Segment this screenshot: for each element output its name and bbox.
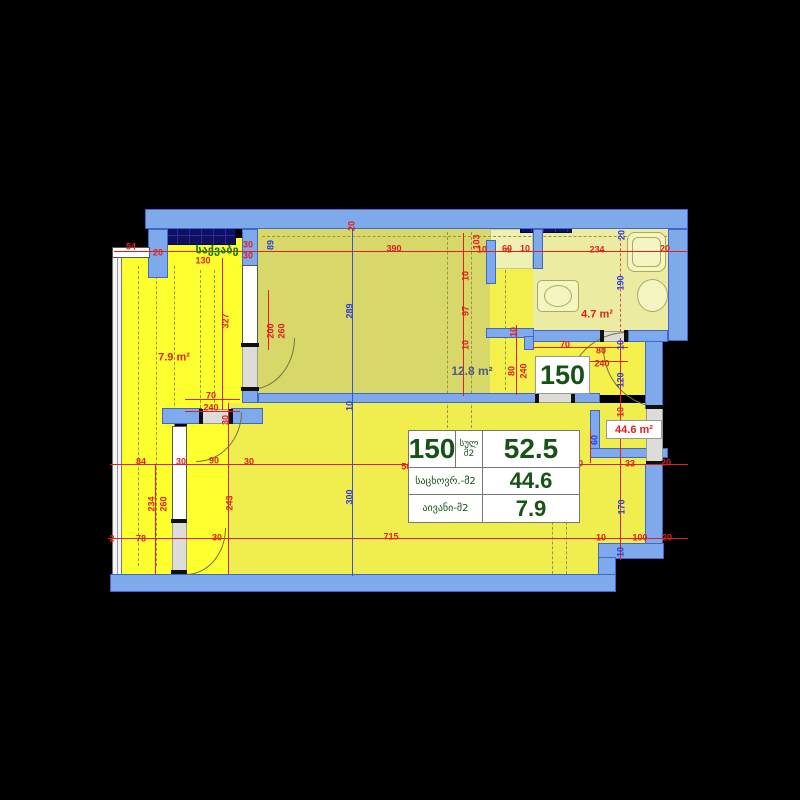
dimension-label: 30 xyxy=(244,458,254,467)
dimension-label: 54 xyxy=(126,243,136,252)
dimension-line xyxy=(155,464,156,574)
dimension-label: 200 xyxy=(267,323,276,338)
dimension-label: 10 xyxy=(617,407,626,417)
dimension-label: 89 xyxy=(267,240,276,250)
floor-plan-canvas: ≈ საქვაბე 7.9 m² 12.8 m² 4.7 m² 150 44.6… xyxy=(0,0,800,800)
sink-basin xyxy=(544,285,572,307)
dimension-label: 97 xyxy=(462,306,471,316)
dimension-label: 260 xyxy=(160,496,169,511)
dimension-label: 130 xyxy=(195,257,210,266)
door-stop xyxy=(171,570,187,574)
apartment-summary-table: 150 სულ მ2 52.5 საცხოვრ.-მ2 44.6 აივანი-… xyxy=(408,430,580,523)
dimension-label: 170 xyxy=(618,499,627,514)
summary-sq-label: მ2 xyxy=(464,449,474,459)
wall xyxy=(258,393,539,403)
dimension-label: 327 xyxy=(222,313,231,328)
summary-unit-cell: 150 xyxy=(409,431,456,468)
dimension-label: 10 xyxy=(596,534,606,543)
wall xyxy=(486,240,496,284)
room-label-bathroom-area: 4.7 m² xyxy=(581,310,613,321)
toilet xyxy=(637,279,668,312)
dimension-label: 240 xyxy=(594,360,609,369)
dimension-label: 10 xyxy=(520,245,530,254)
dimension-label: 20 xyxy=(348,221,357,231)
dimension-label: 30 xyxy=(243,241,253,250)
furniture-dashed-line xyxy=(156,266,157,566)
door-threshold xyxy=(172,522,187,574)
living-area-value: 44.6 m² xyxy=(615,424,653,436)
dimension-label: 70 xyxy=(206,392,216,401)
room-label-boiler: საქვაბე xyxy=(195,245,238,256)
exterior-patch xyxy=(663,341,700,403)
door-stop xyxy=(241,343,259,347)
door-threshold xyxy=(537,393,575,403)
door-swing-arc xyxy=(603,348,663,408)
shower-tray-inner xyxy=(632,237,661,267)
wall xyxy=(628,330,668,342)
summary-total-label: სულ xyxy=(460,439,479,449)
summary-balcony-label: აივანი-მ2 xyxy=(422,503,468,514)
door-stop xyxy=(171,519,187,523)
dimension-line xyxy=(268,290,269,350)
dimension-label: 80 xyxy=(596,347,606,356)
dimension-label: 234 xyxy=(589,246,604,255)
summary-residential-label: საცხოვრ.-მ2 xyxy=(415,476,476,487)
dimension-line xyxy=(222,258,223,410)
furniture-dashed-line xyxy=(174,266,175,426)
dimension-label: 78 xyxy=(136,535,146,544)
dimension-line xyxy=(620,338,621,560)
dimension-label: 300 xyxy=(346,489,355,504)
dimension-label: 80 xyxy=(508,366,517,376)
summary-total-label-cell: სულ მ2 xyxy=(456,431,483,468)
dimension-label: 120 xyxy=(617,372,626,387)
door-stop xyxy=(571,393,575,403)
dimension-label: 20 xyxy=(618,230,627,240)
dimension-label: 10 xyxy=(462,340,471,350)
dimension-label: 100 xyxy=(632,534,647,543)
dimension-label: 20 xyxy=(660,245,670,254)
furniture-dashed-line xyxy=(200,270,201,408)
summary-total-value-cell: 52.5 xyxy=(483,431,579,468)
dimension-label: 10 xyxy=(462,271,471,281)
window xyxy=(172,426,187,524)
dimension-label: 20 xyxy=(153,249,163,258)
summary-balcony-value: 7.9 xyxy=(516,496,547,522)
summary-total-value: 52.5 xyxy=(504,433,559,465)
dimension-label: 30 xyxy=(176,458,186,467)
wall xyxy=(145,209,688,229)
dimension-label: 70 xyxy=(560,341,570,350)
dimension-line xyxy=(228,403,229,574)
dimension-label: 243 xyxy=(226,495,235,510)
summary-residential-value-cell: 44.6 xyxy=(483,468,579,495)
dimension-label: 390 xyxy=(386,245,401,254)
room-label-bedroom-area: 12.8 m² xyxy=(451,365,492,377)
window xyxy=(242,265,258,347)
dimension-label: 20 xyxy=(661,459,671,468)
door-stop xyxy=(241,387,259,391)
dimension-label: 30 xyxy=(243,252,253,261)
summary-residential-value: 44.6 xyxy=(510,468,553,494)
dimension-label: 260 xyxy=(278,323,287,338)
door-stop xyxy=(646,405,663,409)
dimension-label: 10 xyxy=(617,340,626,350)
unit-number: 150 xyxy=(540,360,585,391)
dimension-label: 30 xyxy=(222,415,231,425)
dimension-label: 20 xyxy=(662,534,672,543)
exterior-patch xyxy=(616,559,700,599)
dimension-label: 33 xyxy=(625,460,635,469)
living-area-plate: 44.6 m² xyxy=(606,420,662,439)
summary-unit-number: 150 xyxy=(409,433,455,465)
dimension-label: 190 xyxy=(617,275,626,290)
dimension-line xyxy=(533,347,628,348)
room-label-balcony-area: 7.9 m² xyxy=(158,353,190,364)
balcony-railing-line xyxy=(117,258,118,574)
wall xyxy=(573,393,600,403)
dimension-label: 60 xyxy=(591,435,600,445)
dimension-label: 715 xyxy=(383,533,398,542)
wall xyxy=(533,229,543,269)
dimension-label: 10 xyxy=(617,547,626,557)
furniture-dashed-line xyxy=(138,266,139,566)
dimension-label: 10 xyxy=(346,401,355,411)
dimension-label: 30 xyxy=(212,534,222,543)
door-stop xyxy=(535,393,539,403)
door-stop xyxy=(600,330,604,342)
dimension-label: 234 xyxy=(148,496,157,511)
dimension-label: 84 xyxy=(136,458,146,467)
furniture-dashed-line xyxy=(214,270,215,408)
dimension-label: 2 xyxy=(109,535,114,544)
dimension-label: 90 xyxy=(209,457,219,466)
dimension-label: 289 xyxy=(346,303,355,318)
summary-balcony-value-cell: 7.9 xyxy=(483,495,579,522)
wall xyxy=(668,229,688,341)
dimension-label: 10 xyxy=(510,327,519,337)
summary-residential-label-cell: საცხოვრ.-მ2 xyxy=(409,468,483,495)
dimension-label: 240 xyxy=(520,363,529,378)
dimension-label: 240 xyxy=(203,404,218,413)
wall xyxy=(110,574,616,592)
dimension-label: 60 xyxy=(502,245,512,254)
dimension-label: 10 xyxy=(477,246,487,255)
summary-balcony-label-cell: აივანი-მ2 xyxy=(409,495,483,522)
unit-number-plate: 150 xyxy=(535,356,590,394)
